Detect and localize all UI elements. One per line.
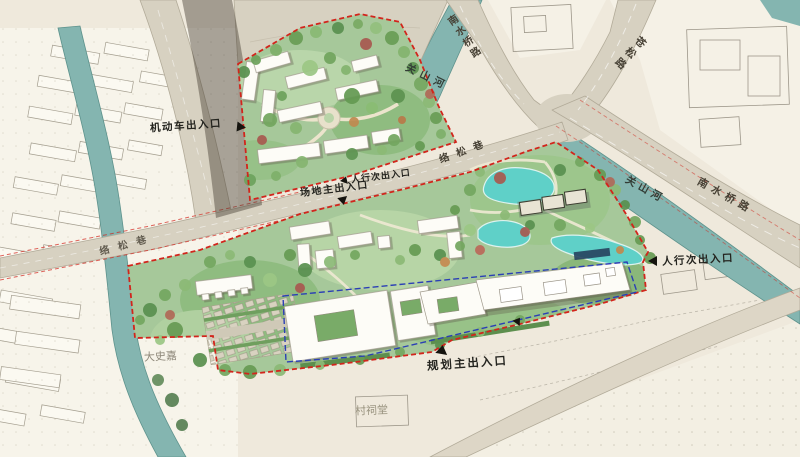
site-plan-screenshot: 机动车出入口 人行次出入口 场地主出入口 人行次出入口 规划主出入口 南水桥路 … bbox=[0, 0, 800, 457]
arrow-up-icon bbox=[435, 344, 448, 355]
arrow-right-icon bbox=[237, 122, 247, 133]
label-place-dashijia: 大史嘉 bbox=[144, 351, 178, 364]
site-plan-map bbox=[0, 0, 800, 457]
arrow-left-icon bbox=[648, 256, 657, 266]
label-place-cuncitang: 村祠堂 bbox=[355, 405, 388, 417]
